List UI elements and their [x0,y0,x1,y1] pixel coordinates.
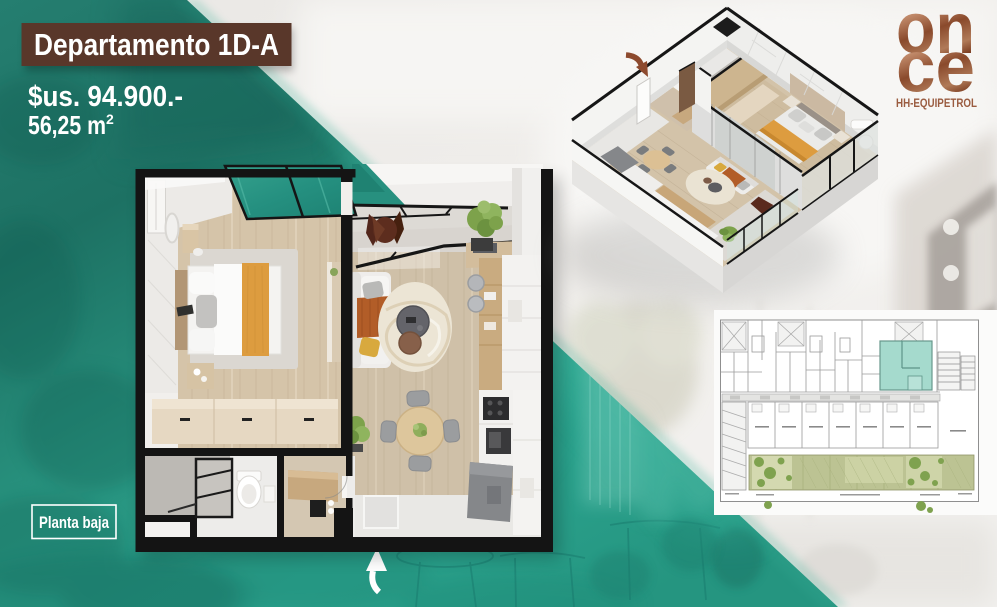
svg-text:56,25 m2: 56,25 m2 [28,110,114,140]
svg-text:Planta baja: Planta baja [39,513,109,532]
svg-text:HH-EQUIPETROL: HH-EQUIPETROL [896,96,977,110]
svg-text:$us. 94.900.-: $us. 94.900.- [28,81,183,113]
svg-text:Departamento 1D-A: Departamento 1D-A [34,27,279,62]
